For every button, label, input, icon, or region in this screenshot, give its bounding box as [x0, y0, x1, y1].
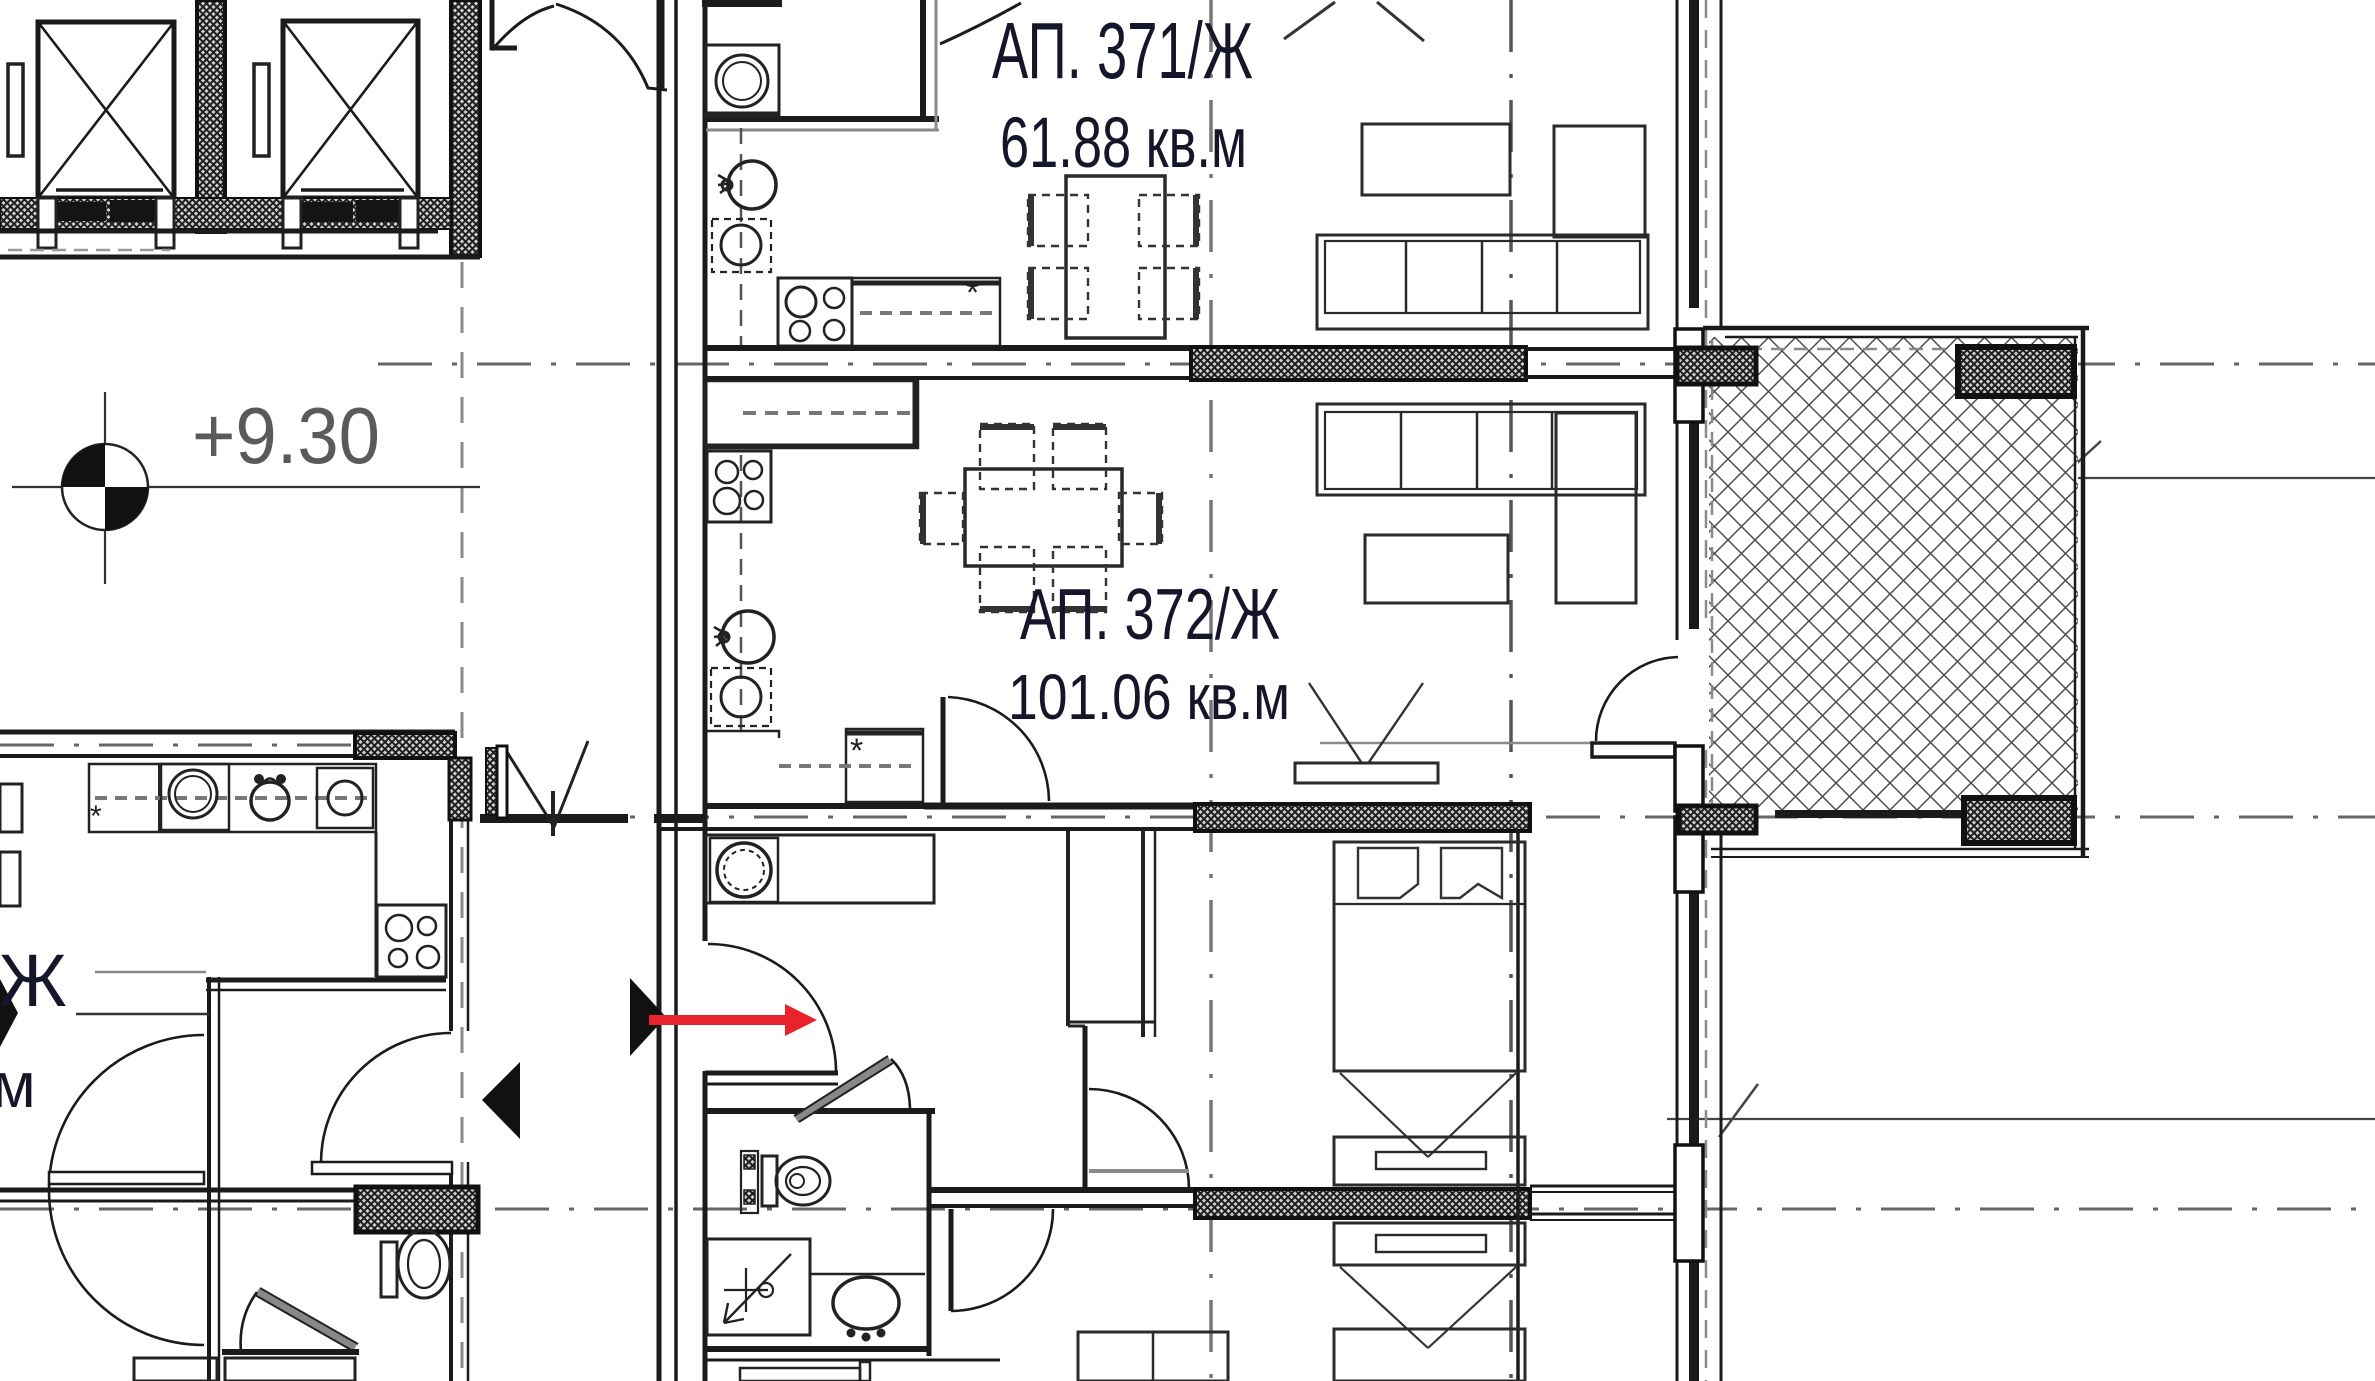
svg-text:АП. 372/Ж: АП. 372/Ж: [1020, 575, 1280, 655]
svg-text:*: *: [966, 274, 979, 312]
svg-text:61.88 кв.м: 61.88 кв.м: [1000, 104, 1247, 183]
svg-text:/Ж: /Ж: [0, 939, 67, 1022]
svg-text:*: *: [850, 732, 863, 770]
svg-text:+9.30: +9.30: [192, 391, 380, 480]
svg-text:АП. 371/Ж: АП. 371/Ж: [992, 6, 1253, 95]
svg-text:101.06 кв.м: 101.06 кв.м: [1008, 661, 1290, 733]
svg-text:кв.м: кв.м: [0, 1049, 36, 1121]
svg-text:*: *: [90, 800, 102, 833]
